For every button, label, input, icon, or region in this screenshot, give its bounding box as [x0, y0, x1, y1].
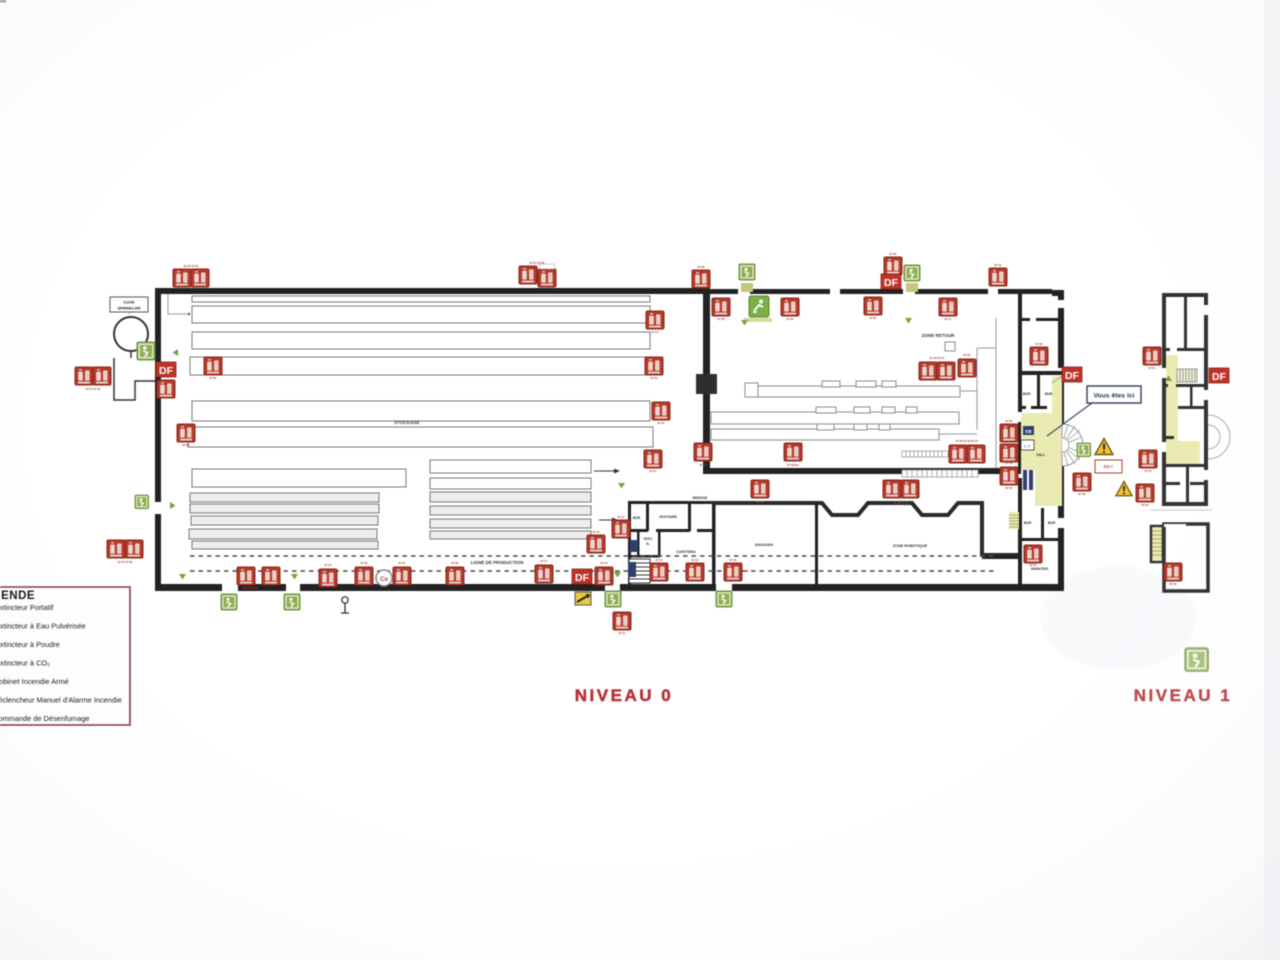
svg-text:N°35 N°36: N°35 N°36 — [243, 586, 258, 590]
svg-text:N°02: N°02 — [183, 443, 190, 447]
svg-text:Extincteur à Eau Pulvérisée: Extincteur à Eau Pulvérisée — [0, 622, 86, 631]
svg-text:N°35: N°35 — [964, 353, 971, 357]
svg-text:N°52: N°52 — [1145, 469, 1152, 473]
svg-text:N°27: N°27 — [700, 463, 707, 467]
svg-text:N°26: N°26 — [757, 500, 764, 504]
svg-text:Extincteur Portatif: Extincteur Portatif — [0, 603, 54, 612]
svg-text:N°22: N°22 — [658, 421, 665, 425]
svg-text:N°31: N°31 — [399, 561, 406, 565]
svg-text:N°35 N°36 N°37: N°35 N°36 N°37 — [956, 439, 979, 443]
svg-text:NIVEAU 0: NIVEAU 0 — [575, 686, 673, 705]
svg-text:N°03: N°03 — [210, 376, 217, 380]
svg-text:N°30: N°30 — [452, 561, 459, 565]
svg-text:N°21: N°21 — [650, 469, 657, 473]
svg-text:NIVEAU 1: NIVEAU 1 — [1134, 686, 1232, 705]
svg-text:N°13: N°13 — [593, 530, 600, 534]
svg-text:ZONE RETOUR: ZONE RETOUR — [922, 333, 955, 338]
svg-text:N°30: N°30 — [870, 316, 877, 320]
svg-text:STOCKAGE: STOCKAGE — [394, 420, 419, 425]
svg-text:N°51: N°51 — [1149, 366, 1156, 370]
svg-text:L.T.: L.T. — [1024, 444, 1030, 449]
svg-text:Commande de Désenfumage: Commande de Désenfumage — [0, 714, 90, 723]
svg-text:N°01 N°02: N°01 N°02 — [86, 387, 101, 391]
svg-text:N°28: N°28 — [718, 317, 725, 321]
svg-text:N°14: N°14 — [656, 558, 663, 562]
svg-text:LEGENDE: LEGENDE — [0, 590, 35, 602]
svg-text:N°09: N°09 — [698, 265, 705, 269]
svg-text:N°37 N°38: N°37 N°38 — [118, 560, 133, 564]
svg-text:N°46: N°46 — [1006, 461, 1013, 465]
svg-text:N°05 N°06: N°05 N°06 — [184, 264, 199, 268]
svg-text:N°33: N°33 — [325, 563, 332, 567]
svg-text:VESTIAIRE: VESTIAIRE — [659, 515, 678, 519]
svg-text:N°31: N°31 — [945, 317, 952, 321]
svg-text:N°29: N°29 — [787, 317, 794, 321]
svg-text:BUR.: BUR. — [1045, 392, 1053, 396]
svg-text:AU !: AU ! — [1103, 464, 1113, 469]
svg-text:N°17: N°17 — [541, 559, 548, 563]
svg-text:N°47: N°47 — [1006, 486, 1013, 490]
svg-text:N°48: N°48 — [1036, 342, 1043, 346]
svg-text:N°42: N°42 — [995, 263, 1002, 267]
svg-text:VEST.: VEST. — [643, 537, 653, 541]
svg-text:N°40: N°40 — [890, 252, 897, 256]
svg-text:ZONE ROBOTIQUE: ZONE ROBOTIQUE — [893, 544, 928, 548]
svg-text:Co: Co — [380, 577, 388, 583]
svg-text:SPRINKLER: SPRINKLER — [117, 306, 140, 311]
svg-text:N°32: N°32 — [361, 561, 368, 565]
svg-text:HALL: HALL — [1036, 453, 1045, 457]
svg-text:CUVE: CUVE — [123, 300, 134, 305]
svg-text:EB: EB — [1025, 429, 1032, 434]
svg-text:N°15: N°15 — [692, 558, 699, 562]
svg-text:Extincteur à CO₂: Extincteur à CO₂ — [0, 659, 50, 668]
svg-text:BUR.: BUR. — [1024, 521, 1032, 525]
svg-text:N°16: N°16 — [730, 558, 737, 562]
svg-text:N°12: N°12 — [618, 515, 625, 519]
svg-text:N°23: N°23 — [651, 376, 658, 380]
svg-text:Déclencheur Manuel d'Alarme In: Déclencheur Manuel d'Alarme Incendie — [0, 696, 122, 705]
svg-text:Extincteur à Poudre: Extincteur à Poudre — [0, 640, 60, 649]
svg-text:MENAGE: MENAGE — [693, 496, 709, 500]
svg-text:MANUTEN.: MANUTEN. — [1031, 567, 1049, 571]
svg-text:x2: x2 — [745, 569, 749, 573]
svg-text:N°11: N°11 — [619, 631, 626, 635]
svg-text:N°33 N°34: N°33 N°34 — [930, 356, 945, 360]
svg-text:CAFETERIA: CAFETERIA — [676, 550, 696, 554]
svg-text:LIGNE DE PRODUCTION: LIGNE DE PRODUCTION — [471, 560, 524, 565]
svg-text:N°43/44: N°43/44 — [787, 463, 798, 467]
svg-text:BUR.: BUR. — [1048, 521, 1056, 525]
svg-text:N°49: N°49 — [1079, 492, 1086, 496]
svg-text:BUR.: BUR. — [633, 516, 641, 520]
svg-text:N°50: N°50 — [1030, 563, 1037, 567]
svg-text:N°53: N°53 — [1142, 503, 1149, 507]
svg-text:N.: N. — [646, 542, 649, 546]
svg-text:MAGASIN: MAGASIN — [755, 543, 773, 547]
svg-text:N°45: N°45 — [1006, 419, 1013, 423]
svg-text:Robinet Incendie Armé: Robinet Incendie Armé — [0, 677, 69, 686]
svg-text:BUR.: BUR. — [1023, 392, 1031, 396]
svg-text:Vous êtes ici: Vous êtes ici — [1093, 393, 1134, 400]
svg-text:N°24: N°24 — [652, 330, 659, 334]
svg-text:N°54: N°54 — [1170, 582, 1177, 586]
svg-text:N°38 N°39: N°38 N°39 — [894, 501, 909, 505]
svg-text:N°14: N°14 — [601, 561, 608, 565]
